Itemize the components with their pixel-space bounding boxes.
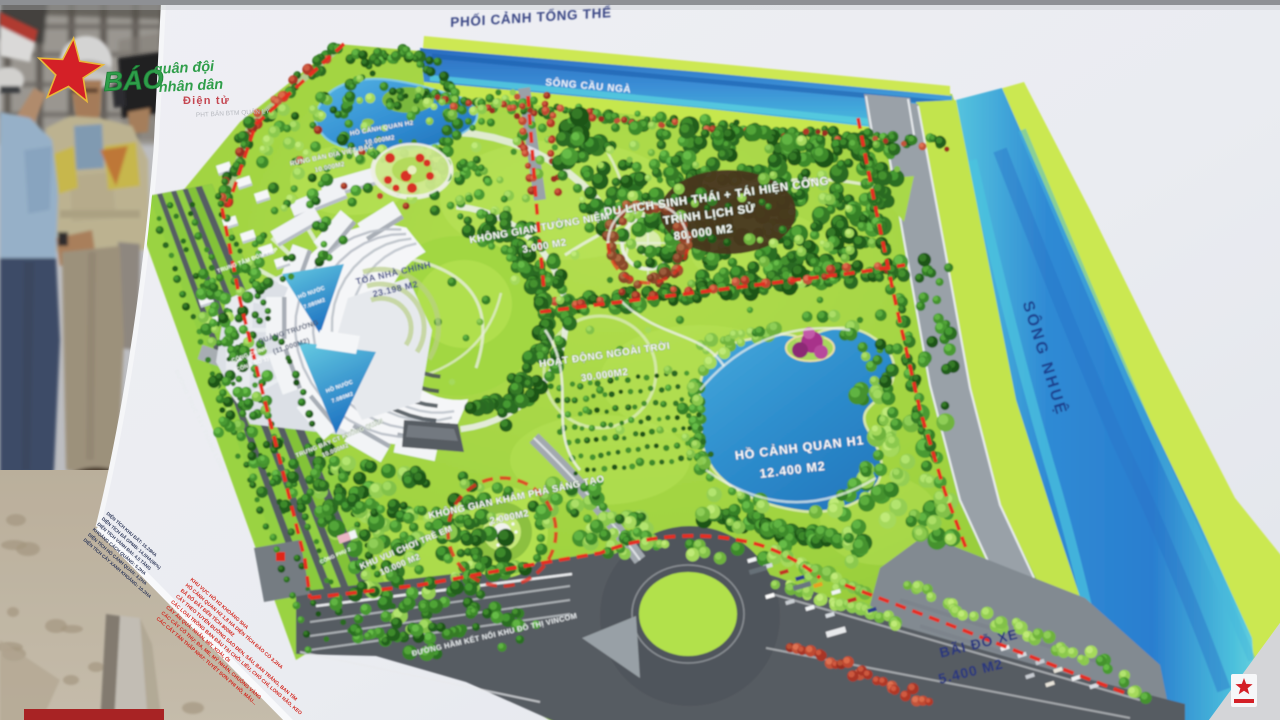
svg-text:quân đội: quân đội (153, 59, 215, 78)
svg-text:Điện tử: Điện tử (183, 95, 230, 107)
svg-text:nhân dân: nhân dân (158, 77, 223, 96)
